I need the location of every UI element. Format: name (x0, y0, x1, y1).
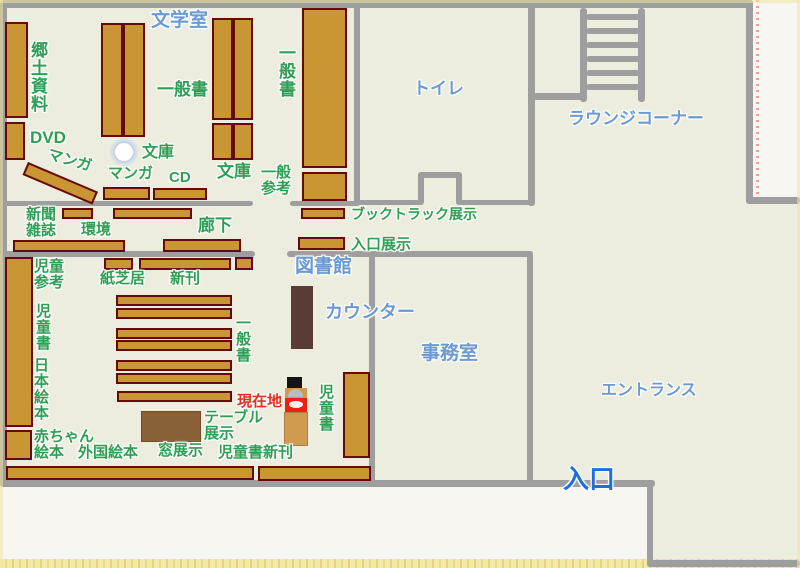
entrance-hall-label: エントランス (601, 382, 697, 399)
wall (647, 483, 653, 567)
wall (0, 480, 655, 487)
children-new-books-label: 児童書新刊 (218, 445, 293, 461)
bookshelf (62, 208, 93, 219)
bookshelf (116, 295, 232, 306)
wall (354, 200, 422, 205)
bookshelf (258, 466, 371, 481)
current-location-label: 現在地 (237, 394, 282, 410)
bookshelf (117, 391, 232, 402)
bookshelf (104, 258, 133, 270)
staircase-step (586, 14, 640, 20)
bookshelf (298, 237, 345, 250)
paper-edge-left (0, 0, 3, 568)
general-reference-label: 一般 参考 (261, 165, 291, 197)
cd-label: CD (169, 170, 191, 186)
bookshelf (113, 208, 192, 219)
current-location-head (285, 388, 307, 398)
bookshelf (103, 187, 150, 200)
bookshelf (212, 18, 233, 120)
wall (354, 0, 360, 205)
entrance-door-label: 入口 (563, 465, 615, 493)
booktruck-display-label: ブックトラック展示 (351, 207, 477, 222)
display-table (141, 411, 201, 442)
japanese-picture-books-label: 日本絵本 (33, 357, 48, 421)
table-display-label: テーブル 展示 (204, 410, 263, 442)
bookshelf (233, 18, 253, 120)
general-books-label-3: 一般書 (235, 315, 250, 363)
bookshelf (235, 257, 253, 270)
paper-tear-speckles (756, 0, 759, 197)
manga-label-2: マンガ (108, 166, 153, 182)
dvd-label: DVD (30, 129, 66, 147)
staircase-step (586, 42, 640, 48)
current-location-base (284, 412, 308, 446)
bookshelf (139, 258, 231, 270)
wall (647, 560, 800, 567)
staircase-step (586, 84, 640, 90)
current-location-badge (285, 398, 307, 412)
bookshelf (212, 123, 233, 160)
bookshelf (116, 360, 232, 371)
bookshelf (101, 23, 123, 137)
paper-edge-top (0, 0, 800, 3)
service-counter (291, 286, 313, 349)
bookshelf (5, 257, 33, 427)
general-books-label-1: 一般書 (157, 81, 208, 99)
wall (527, 251, 533, 483)
newspapers-magazines-label: 新聞 雑誌 (26, 207, 56, 239)
bookshelf (5, 430, 32, 460)
kamishibai-label: 紙芝居 (100, 271, 145, 287)
bookshelf (5, 22, 28, 118)
bookshelf (233, 123, 253, 160)
bookshelf (163, 239, 241, 252)
wall (528, 0, 535, 206)
staircase-step (586, 28, 640, 34)
window-display-label: 窓展示 (158, 443, 203, 459)
wall (290, 201, 360, 206)
library-label: 図書館 (295, 257, 352, 278)
bookshelf (123, 23, 145, 137)
bookshelf (153, 188, 207, 200)
floor-map: 文学室トイレラウンジコーナー図書館カウンター事務室エントランス入口郷土資料DVD… (0, 0, 800, 568)
children-reference-label: 児童 参考 (34, 259, 64, 291)
bookshelf (6, 466, 254, 480)
bookshelf (116, 373, 232, 384)
building-area-2 (647, 487, 800, 567)
bookshelf (116, 328, 232, 339)
office-label: 事務室 (421, 344, 478, 365)
wall (746, 197, 800, 204)
corridor-label: 廊下 (198, 217, 232, 235)
staircase-step (586, 56, 640, 62)
bookshelf (13, 240, 125, 252)
wall (746, 0, 753, 204)
building-area-1 (753, 197, 800, 487)
bookshelf (116, 340, 232, 351)
local-materials-label: 郷土資料 (29, 41, 46, 113)
wall (533, 93, 585, 100)
general-books-label-2: 一般書 (277, 44, 294, 98)
bunko-label-1: 文庫 (142, 144, 174, 161)
literature-room-label: 文学室 (151, 11, 208, 32)
bunko-label-2: 文庫 (217, 163, 251, 181)
bookshelf (301, 208, 345, 219)
current-location-cap (287, 377, 302, 388)
counter-label: カウンター (325, 303, 415, 322)
new-books-label: 新刊 (170, 271, 200, 287)
bookshelf (302, 8, 347, 168)
entrance-display-label: 入口展示 (351, 237, 411, 253)
wall (456, 200, 533, 205)
bookshelf (5, 122, 25, 160)
bookshelf (302, 172, 347, 201)
children-books-label-2: 児童書 (318, 384, 333, 432)
children-books-label-1: 児童書 (35, 303, 50, 351)
staircase-step (586, 70, 640, 76)
lounge-corner-label: ラウンジコーナー (568, 110, 704, 128)
round-pillar (113, 141, 135, 163)
environment-label: 環境 (81, 222, 111, 238)
toilet-label: トイレ (413, 80, 464, 98)
foreign-picture-books-label: 外国絵本 (78, 445, 138, 461)
bookshelf (116, 308, 232, 319)
wall (456, 172, 462, 205)
bookshelf (343, 372, 370, 458)
